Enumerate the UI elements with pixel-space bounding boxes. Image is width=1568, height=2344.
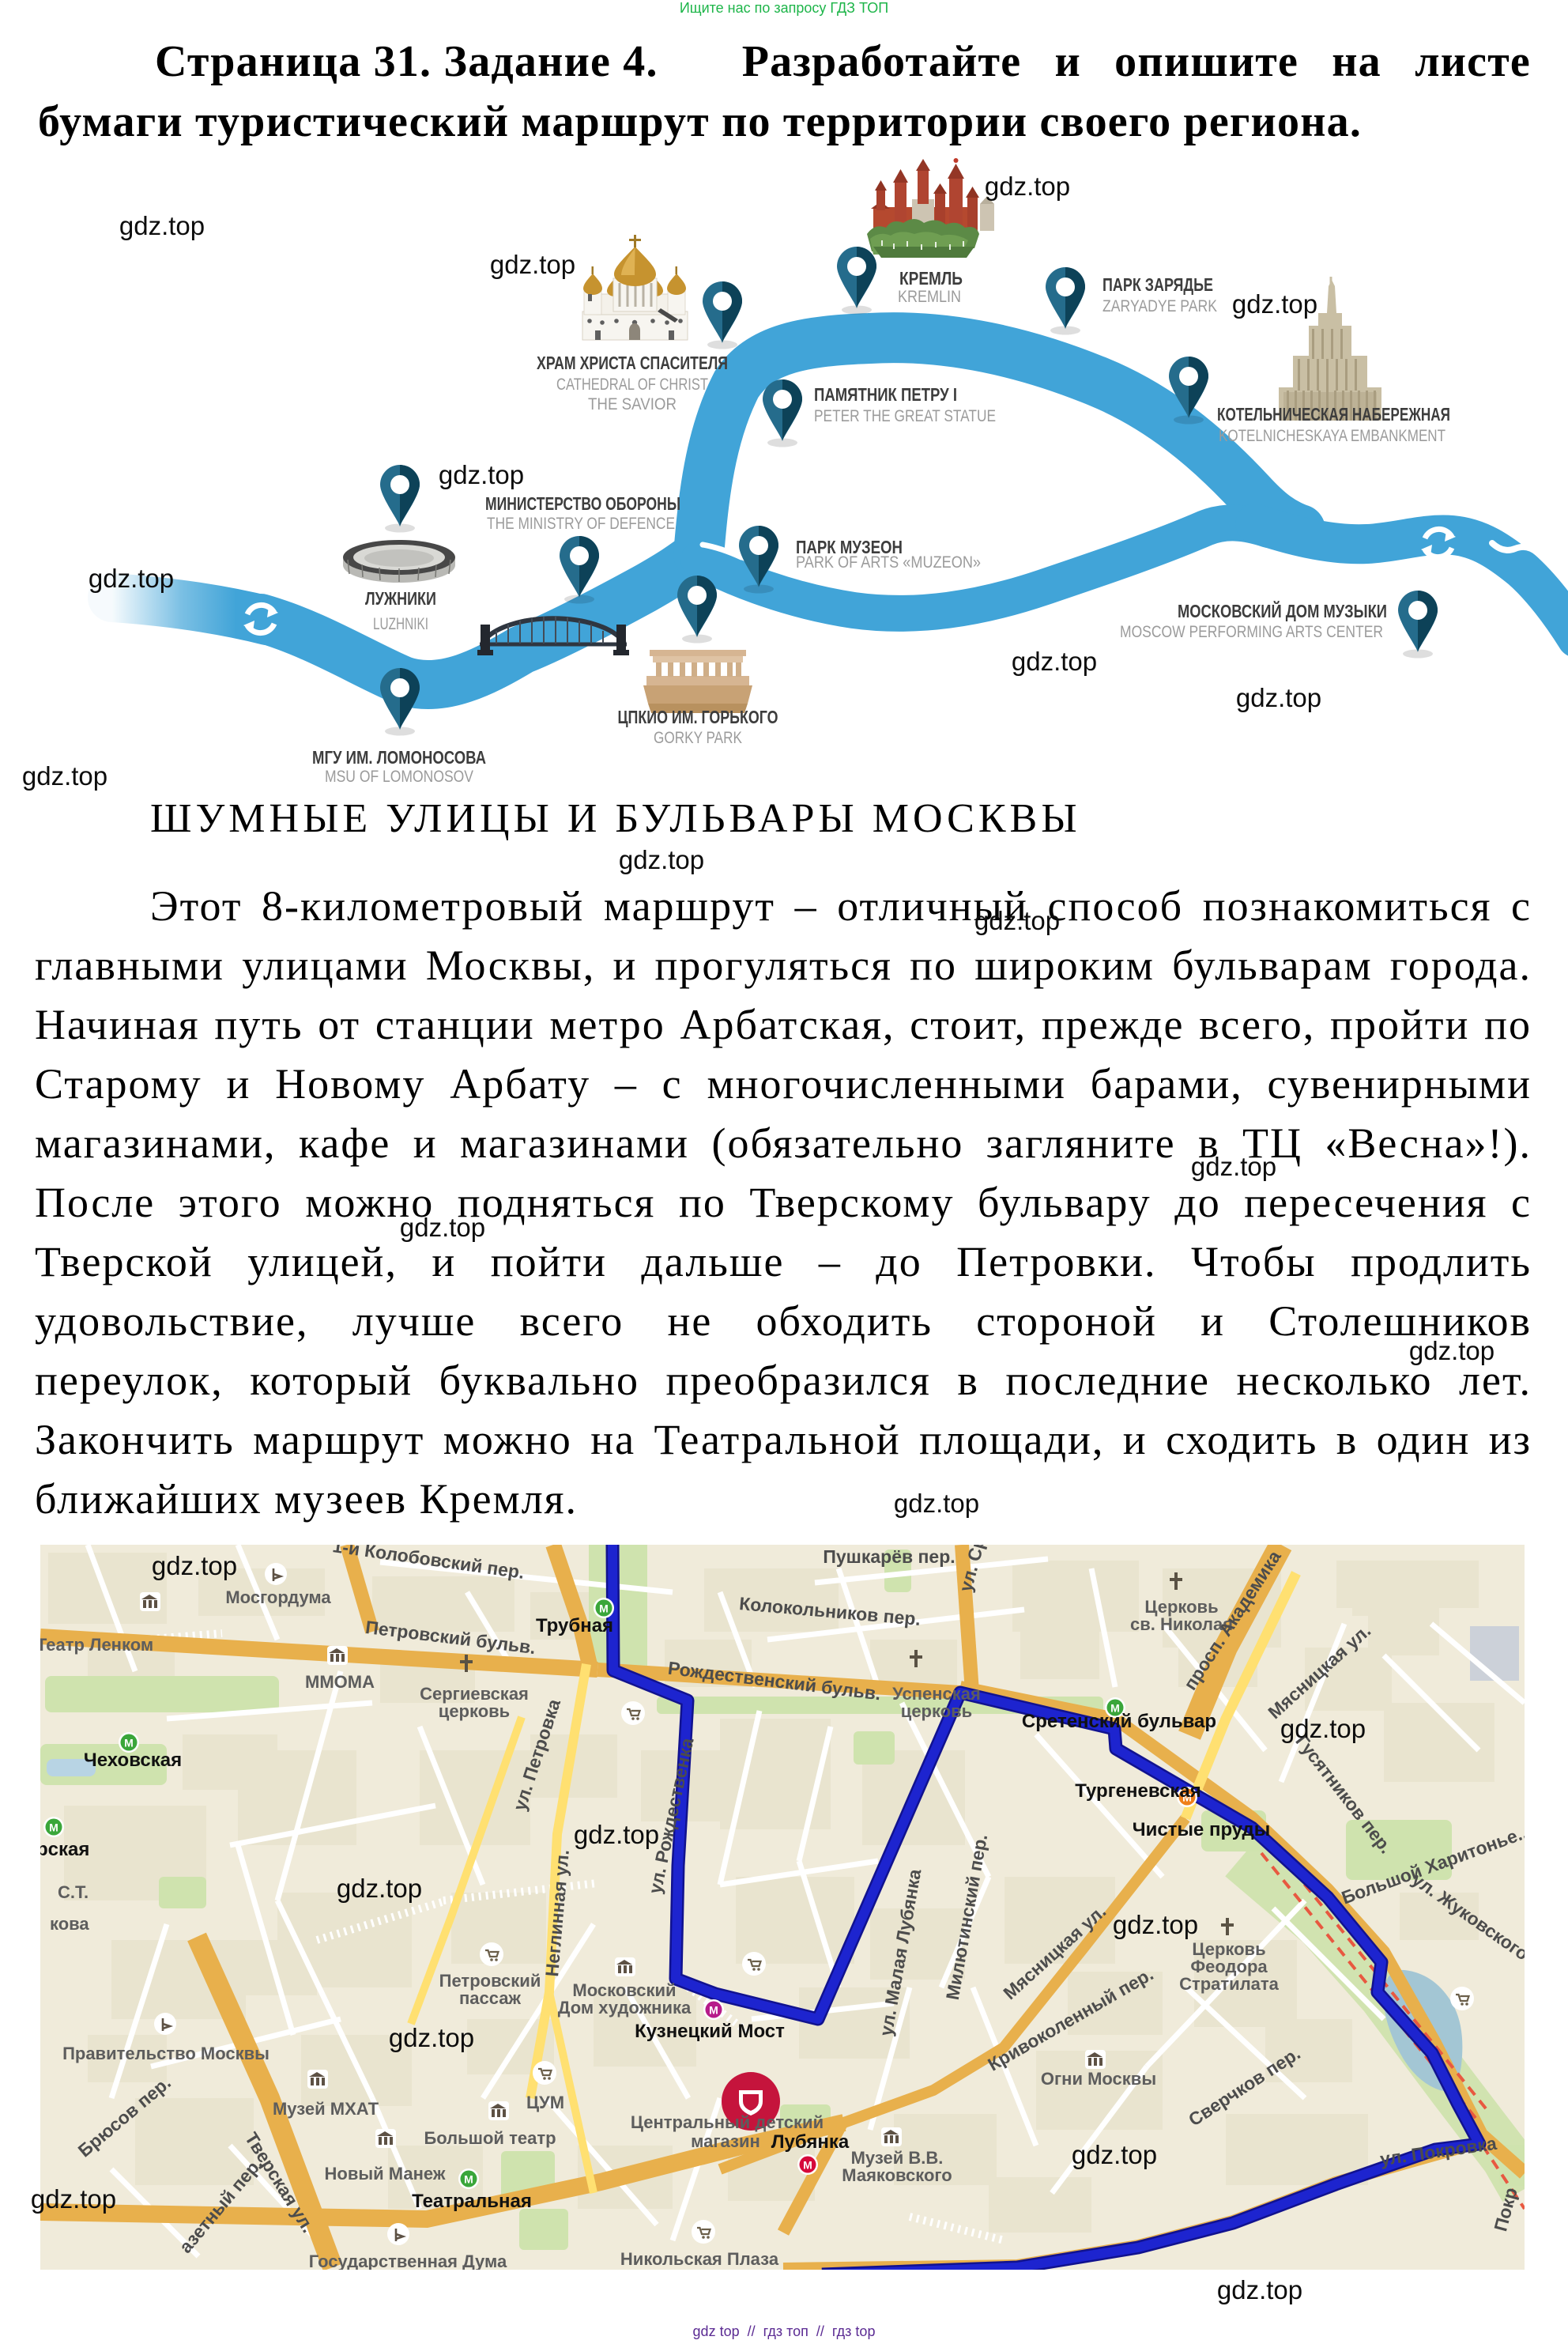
svg-text:Покр: Покр (1490, 2185, 1521, 2233)
svg-text:ЦУМ: ЦУМ (526, 2093, 564, 2112)
svg-text:Театр Ленком: Театр Ленком (40, 1635, 153, 1655)
svg-text:ул. Ср: ул. Ср (955, 1545, 989, 1594)
svg-text:Государственная Дума: Государственная Дума (309, 2252, 507, 2270)
svg-text:ХРАМ ХРИСТА СПАСИТЕЛЯ: ХРАМ ХРИСТА СПАСИТЕЛЯ (537, 353, 728, 373)
svg-text:Театральная: Театральная (412, 2191, 532, 2212)
svg-text:ул. Жуковского: ул. Жуковского (1408, 1869, 1525, 1965)
svg-text:МГУ ИМ. ЛОМОНОСОВА: МГУ ИМ. ЛОМОНОСОВА (312, 747, 486, 768)
svg-text:PETER THE GREAT STATUE: PETER THE GREAT STATUE (814, 407, 996, 425)
svg-text:Тургеневская: Тургеневская (1075, 1780, 1201, 1802)
svg-text:церковь: церковь (439, 1701, 510, 1721)
svg-text:Гусятников пер.: Гусятников пер. (1291, 1731, 1396, 1857)
svg-text:MOSCOW PERFORMING ARTS CENTER: MOSCOW PERFORMING ARTS CENTER (1120, 623, 1383, 641)
svg-text:Никольская Плаза: Никольская Плаза (620, 2249, 779, 2269)
svg-text:С.Т.: С.Т. (58, 1882, 89, 1902)
svg-text:ул. Малая Лубянка: ул. Малая Лубянка (876, 1867, 925, 2037)
svg-text:Мясницкая ул.: Мясницкая ул. (999, 1900, 1110, 2003)
svg-text:МИНИСТЕРСТВО ОБОРОНЫ: МИНИСТЕРСТВО ОБОРОНЫ (485, 493, 680, 514)
svg-text:азетный пер.: азетный пер. (175, 2153, 266, 2257)
svg-text:Пушкарёв пер.: Пушкарёв пер. (823, 1546, 955, 1567)
svg-text:ПАРК ЗАРЯДЬЕ: ПАРК ЗАРЯДЬЕ (1102, 274, 1213, 295)
svg-text:КОТЕЛЬНИЧЕСКАЯ НАБЕРЕЖНАЯ: КОТЕЛЬНИЧЕСКАЯ НАБЕРЕЖНАЯ (1217, 404, 1450, 425)
svg-text:Чеховская: Чеховская (84, 1750, 182, 1771)
svg-text:THE MINISTRY OF DEFENCE: THE MINISTRY OF DEFENCE (487, 515, 675, 533)
svg-text:Трубная: Трубная (536, 1615, 613, 1636)
svg-text:Кузнецкий Мост: Кузнецкий Мост (635, 2021, 785, 2042)
svg-text:PARK OF ARTS «MUZEON»: PARK OF ARTS «MUZEON» (796, 553, 981, 572)
svg-text:Маяковского: Маяковского (842, 2165, 952, 2185)
svg-text:ул. Рождественка: ул. Рождественка (644, 1736, 697, 1896)
svg-text:Рождественский бульв.: Рождественский бульв. (667, 1658, 882, 1704)
svg-text:Правительство Москвы: Правительство Москвы (62, 2044, 269, 2063)
svg-text:KOTELNICHESKAYA EMBANKMENT: KOTELNICHESKAYA EMBANKMENT (1219, 427, 1445, 445)
svg-text:MSU OF LOMONOSOV: MSU OF LOMONOSOV (325, 768, 473, 786)
svg-text:Неглинная ул.: Неглинная ул. (541, 1849, 573, 1978)
svg-text:GORKY PARK: GORKY PARK (654, 729, 742, 747)
svg-text:Новый Манеж: Новый Манеж (325, 2164, 446, 2184)
svg-text:ЦПКИО ИМ. ГОРЬКОГО: ЦПКИО ИМ. ГОРЬКОГО (618, 707, 778, 727)
svg-text:МОСКОВСКИЙ ДОМ МУЗЫКИ: МОСКОВСКИЙ ДОМ МУЗЫКИ (1178, 600, 1387, 621)
svg-text:ММОМА: ММОМА (305, 1672, 375, 1692)
svg-text:ерская: ерская (40, 1839, 89, 1860)
svg-text:KREMLIN: KREMLIN (898, 288, 961, 306)
svg-text:кова: кова (50, 1914, 89, 1934)
svg-text:ПАМЯТНИК ПЕТРУ I: ПАМЯТНИК ПЕТРУ I (814, 384, 957, 405)
svg-text:THE SAVIOR: THE SAVIOR (588, 395, 677, 413)
svg-text:Брюсов пер.: Брюсов пер. (74, 2072, 175, 2161)
svg-text:пассаж: пассаж (459, 1988, 521, 2008)
svg-text:КРЕМЛЬ: КРЕМЛЬ (899, 268, 963, 289)
svg-text:Центральный детский: Центральный детский (631, 2112, 824, 2132)
svg-text:Стратилата: Стратилата (1179, 1974, 1280, 1994)
svg-text:Дом художника: Дом художника (558, 1998, 692, 2018)
svg-text:Музей МХАТ: Музей МХАТ (273, 2099, 379, 2119)
svg-text:CATHEDRAL OF CHRIST: CATHEDRAL OF CHRIST (556, 376, 708, 394)
svg-text:церковь: церковь (901, 1701, 972, 1721)
svg-text:Колокольников пер.: Колокольников пер. (738, 1593, 922, 1629)
svg-text:1-й Колобовский пер.: 1-й Колобовский пер. (331, 1545, 526, 1583)
svg-text:Огни Москвы: Огни Москвы (1041, 2069, 1156, 2089)
svg-text:LUZHNIKI: LUZHNIKI (373, 615, 428, 633)
svg-text:Мосгордума: Мосгордума (225, 1587, 331, 1607)
svg-text:ЛУЖНИКИ: ЛУЖНИКИ (365, 588, 436, 609)
svg-text:Сверчков пер.: Сверчков пер. (1185, 2043, 1304, 2131)
svg-text:Чистые пруды: Чистые пруды (1133, 1819, 1271, 1840)
svg-text:ул. Петровка: ул. Петровка (509, 1697, 564, 1814)
svg-text:Сретенский бульвар: Сретенский бульвар (1022, 1711, 1216, 1732)
svg-text:Милютинский пер.: Милютинский пер. (942, 1833, 991, 2002)
svg-text:Петровский бульв.: Петровский бульв. (364, 1617, 537, 1658)
svg-text:магазин: магазин (691, 2131, 760, 2151)
svg-text:ZARYADYE PARK: ZARYADYE PARK (1102, 297, 1217, 315)
svg-text:ул. Покровка: ул. Покровка (1379, 2133, 1498, 2169)
svg-text:Большой театр: Большой театр (424, 2128, 556, 2148)
svg-text:Лубянка: Лубянка (771, 2131, 850, 2153)
svg-text:Мясницкая ул.: Мясницкая ул. (1264, 1620, 1374, 1723)
